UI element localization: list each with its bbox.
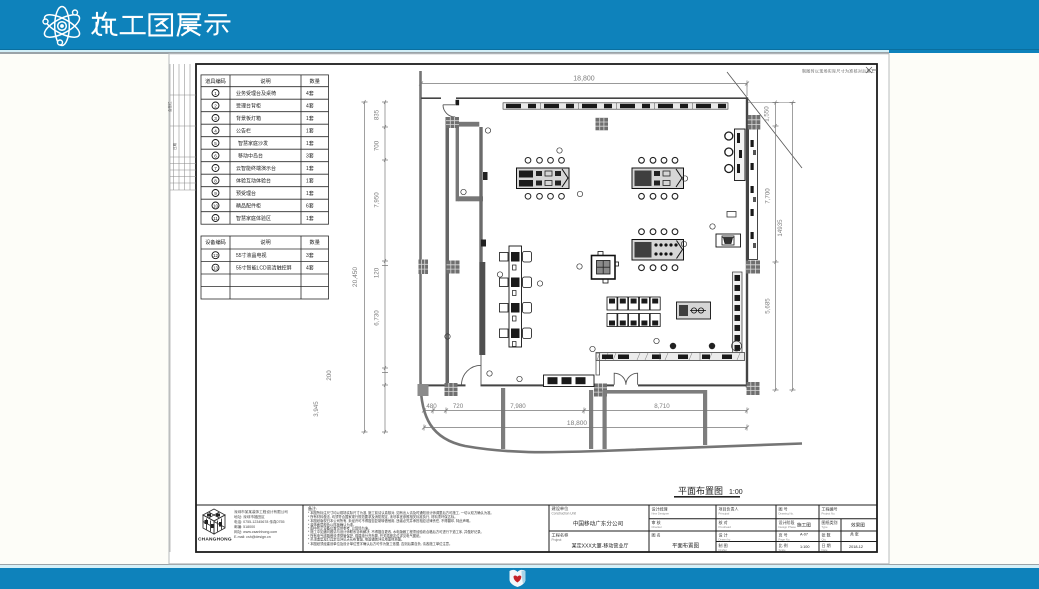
svg-text:2: 2	[214, 103, 217, 108]
svg-text:数量: 数量	[310, 238, 320, 246]
svg-text:55寸智能LCD高清触控屏: 55寸智能LCD高清触控屏	[236, 265, 292, 272]
svg-text:预受理台: 预受理台	[236, 190, 256, 197]
svg-text:地址: 深圳市福田区: 地址: 深圳市福田区	[234, 514, 265, 519]
svg-text:7: 7	[214, 166, 217, 171]
svg-text:3,945: 3,945	[313, 401, 320, 417]
svg-text:480: 480	[426, 403, 437, 410]
svg-text:电话: 0755-12345678 传真0755: 电话: 0755-12345678 传真0755	[234, 519, 285, 524]
svg-text:1套: 1套	[306, 178, 314, 185]
svg-text:13: 13	[213, 266, 219, 271]
svg-text:施工图: 施工图	[797, 522, 811, 529]
svg-text:邮编: 518000: 邮编: 518000	[234, 524, 255, 529]
svg-text:120: 120	[374, 267, 381, 278]
svg-text:1套: 1套	[306, 128, 314, 135]
svg-text:1套: 1套	[306, 115, 314, 122]
svg-text:1套: 1套	[306, 140, 314, 147]
svg-text:深圳市某某装饰工程设计有限公司: 深圳市某某装饰工程设计有限公司	[234, 509, 288, 514]
svg-text:9: 9	[214, 191, 217, 196]
svg-text:4: 4	[214, 128, 217, 133]
svg-text:会签栏: 会签栏	[167, 101, 172, 112]
svg-text:Construction Unit: Construction Unit	[552, 512, 577, 516]
svg-text:720: 720	[453, 403, 464, 410]
svg-text:备注:: 备注:	[308, 505, 317, 511]
svg-text:* 本图纸须经建设单位及设计单位签字确认后方可作为施工依据,: * 本图纸须经建设单位及设计单位签字确认后方可作为施工依据, 否则后果自负, 请…	[308, 541, 452, 546]
svg-text:1套: 1套	[306, 190, 314, 197]
svg-text:Project No.: Project No.	[822, 512, 836, 516]
svg-text:Principal: Principal	[719, 512, 730, 516]
svg-text:Design Phase: Design Phase	[779, 525, 797, 529]
svg-text:Proofread: Proofread	[719, 525, 732, 529]
svg-text:7,950: 7,950	[374, 192, 381, 208]
svg-text:1: 1	[214, 91, 217, 96]
svg-text:7,700: 7,700	[765, 188, 772, 204]
svg-text:18,800: 18,800	[567, 420, 588, 427]
svg-text:A-07: A-07	[800, 533, 808, 537]
svg-text:3套: 3套	[306, 153, 314, 160]
svg-text:10: 10	[213, 203, 219, 208]
svg-text:8,710: 8,710	[654, 403, 670, 410]
svg-text:Scale: Scale	[779, 548, 786, 552]
svg-text:12: 12	[213, 253, 219, 258]
svg-text:1:00: 1:00	[729, 489, 743, 496]
svg-text:公告栏: 公告栏	[236, 128, 251, 135]
svg-text:* 吊顶造型及灯具定位详见天花布置图, 地面铺装详见地面材质: * 吊顶造型及灯具定位详见天花布置图, 地面铺装详见地面材质图。	[308, 537, 404, 542]
svg-text:1套: 1套	[306, 215, 314, 222]
svg-text:1,550: 1,550	[764, 106, 771, 122]
svg-text:移动中岛台: 移动中岛台	[238, 153, 263, 160]
svg-text:CHANGHONG: CHANGHONG	[198, 537, 232, 543]
svg-text:8: 8	[214, 178, 217, 183]
svg-text:200: 200	[326, 370, 333, 381]
svg-text:835: 835	[374, 109, 381, 120]
svg-text:2018-12: 2018-12	[849, 545, 863, 549]
svg-text:New Designer: New Designer	[652, 512, 670, 516]
svg-text:6: 6	[214, 153, 217, 158]
svg-text:Checker: Checker	[652, 525, 662, 529]
svg-text:数量: 数量	[310, 77, 320, 85]
svg-text:Type: Type	[822, 525, 829, 529]
svg-text:5,685: 5,685	[765, 298, 772, 314]
svg-text:效果图: 效果图	[851, 522, 865, 529]
svg-text:5: 5	[214, 141, 217, 146]
svg-text:55寸液晶电视: 55寸液晶电视	[236, 252, 267, 259]
svg-text:6,730: 6,730	[374, 310, 381, 326]
svg-text:日期: 日期	[172, 143, 177, 150]
svg-text:云智能终端演示台: 云智能终端演示台	[236, 165, 276, 172]
svg-text:平面布置图: 平面布置图	[672, 542, 699, 550]
svg-text:11: 11	[213, 216, 218, 221]
svg-text:Page No.: Page No.	[779, 538, 791, 542]
svg-text:700: 700	[374, 140, 381, 151]
svg-text:6套: 6套	[306, 203, 314, 210]
svg-text:18,800: 18,800	[573, 76, 595, 83]
svg-text:20,450: 20,450	[352, 267, 359, 288]
svg-text:Project: Project	[552, 538, 562, 542]
svg-text:智慧家庭沙发: 智慧家庭沙发	[238, 140, 268, 147]
svg-text:设备编码: 设备编码	[205, 238, 226, 246]
svg-text:道具编码: 道具编码	[205, 77, 226, 85]
svg-text:Drafter: Drafter	[719, 548, 728, 552]
svg-text:背景板灯箱: 背景板灯箱	[236, 115, 261, 122]
svg-text:7,980: 7,980	[510, 403, 526, 410]
svg-text:共 张: 共 张	[850, 532, 859, 537]
svg-text:4套: 4套	[306, 265, 314, 272]
svg-text:Drawn by: Drawn by	[719, 538, 731, 542]
svg-text:图 名: 图 名	[652, 532, 661, 538]
svg-text:E-mail: csh@design.cn: E-mail: csh@design.cn	[234, 535, 271, 539]
svg-text:4套: 4套	[306, 90, 314, 97]
svg-text:体验互动体验台: 体验互动体验台	[236, 178, 271, 185]
svg-text:业务受理台及桌椅: 业务受理台及桌椅	[236, 90, 276, 97]
svg-text:1:100: 1:100	[800, 545, 810, 549]
svg-text:受理台背柜: 受理台背柜	[236, 103, 261, 110]
svg-text:3: 3	[214, 116, 217, 121]
svg-text:14935: 14935	[777, 219, 784, 237]
svg-text:4套: 4套	[306, 103, 314, 110]
svg-text:某定XXX大厦-移动营业厅: 某定XXX大厦-移动营业厅	[572, 543, 629, 550]
svg-text:Qty: Qty	[822, 538, 827, 542]
svg-text:3套: 3套	[306, 252, 314, 259]
svg-text:说明: 说明	[260, 238, 270, 246]
svg-text:中国移动广东分公司: 中国移动广东分公司	[573, 520, 623, 528]
svg-text:说明: 说明	[260, 77, 270, 85]
svg-text:精品配件柜: 精品配件柜	[236, 203, 261, 210]
svg-text:1套: 1套	[306, 165, 314, 172]
svg-text:Drawing No.: Drawing No.	[779, 512, 795, 516]
svg-text:制图时以现场实际尺寸为准核对后施工: 制图时以现场实际尺寸为准核对后施工	[802, 68, 875, 74]
svg-text:Date: Date	[822, 548, 828, 552]
svg-text:网址: www.csanhhong.com: 网址: www.csanhhong.com	[234, 529, 277, 534]
svg-text:智慧家庭体验区: 智慧家庭体验区	[236, 215, 271, 222]
svg-text:平面布置图: 平面布置图	[678, 485, 723, 496]
